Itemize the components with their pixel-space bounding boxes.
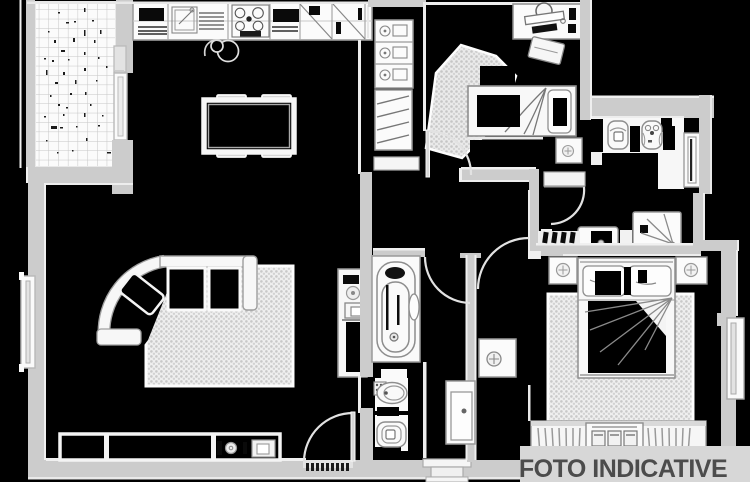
svg-text:FOTO INDICATIVE: FOTO INDICATIVE — [519, 455, 727, 482]
